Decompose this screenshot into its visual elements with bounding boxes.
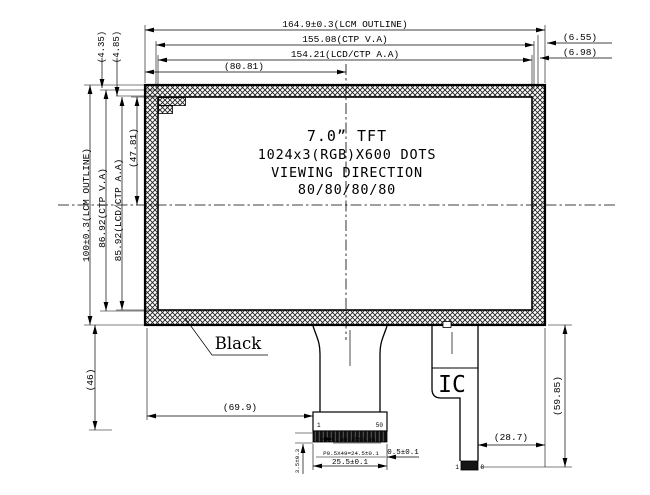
dim-label-center-offset-w: (80.81) (224, 61, 264, 72)
corner-mark-upper (159, 98, 186, 106)
ic-label: IC (438, 372, 466, 398)
display-viewing-label: VIEWING DIRECTION (271, 165, 423, 181)
dim-label-bottom-zone: (46) (85, 369, 96, 392)
pin-number-last: 50 (376, 422, 384, 429)
dim-label-right-gap-2: (6.98) (563, 47, 597, 58)
display-size-text: 7.0” TFT (307, 127, 387, 145)
dim-label-lcm-height: 100±0.3(LCM OUTLINE) (81, 148, 92, 262)
display-resolution-text: 1024x3(RGB)X600 DOTS (258, 147, 437, 163)
dim-label-lcd-aa-width: 154.21(LCD/CTP A.A) (291, 49, 399, 60)
drawing-canvas: 1 50 IC 1 8 (0, 0, 650, 495)
lcm-outline-drawing: 1 50 IC 1 8 (0, 0, 650, 495)
ic-pin-first: 1 (455, 464, 459, 471)
ic-tail-connector (461, 461, 478, 470)
dim-label-stiffener: 3.5±0.3 (294, 448, 301, 473)
dim-label-top-gap-1: (4.35) (97, 31, 107, 63)
dim-label-connector-width: 25.5±0.1 (332, 459, 369, 467)
corner-mark-lower (159, 106, 173, 114)
ic-pin-last: 8 (481, 464, 485, 471)
dim-label-pad-width: W0.35±0.05 (341, 436, 376, 443)
dim-label-pad-pitch: P0.5X49=24.5±0.1 (323, 450, 379, 457)
dim-label-ctp-va-height: 86.92(CTP V.A) (97, 168, 108, 248)
dim-label-lcd-aa-height: 85.92(LCD/CTP A.A) (113, 159, 124, 262)
dim-label-right-gap-1: (6.55) (563, 32, 597, 43)
pin-number-first: 1 (317, 422, 321, 429)
dim-label-edge-clearance: 0.5±0.1 (387, 449, 419, 457)
dim-label-center-offset-h: (47.81) (128, 128, 139, 168)
dim-label-fpc-length: (59.85) (552, 376, 563, 416)
display-viewing-angles: 80/80/80/80 (298, 182, 396, 198)
dim-label-ic-tail-offset: (28.7) (494, 432, 528, 443)
dim-label-fpc-offset: (69.9) (223, 402, 257, 413)
black-bezel-label: Black (215, 334, 262, 353)
fpc-edge-left (313, 326, 320, 412)
dim-label-top-gap-2: (4.85) (112, 31, 122, 63)
dim-label-ctp-va-width: 155.08(CTP V.A) (302, 34, 388, 45)
fpc-edge-right (380, 326, 387, 412)
dim-label-lcm-width: 164.9±0.3(LCM OUTLINE) (282, 19, 407, 30)
ic-tail-notch (443, 322, 451, 328)
